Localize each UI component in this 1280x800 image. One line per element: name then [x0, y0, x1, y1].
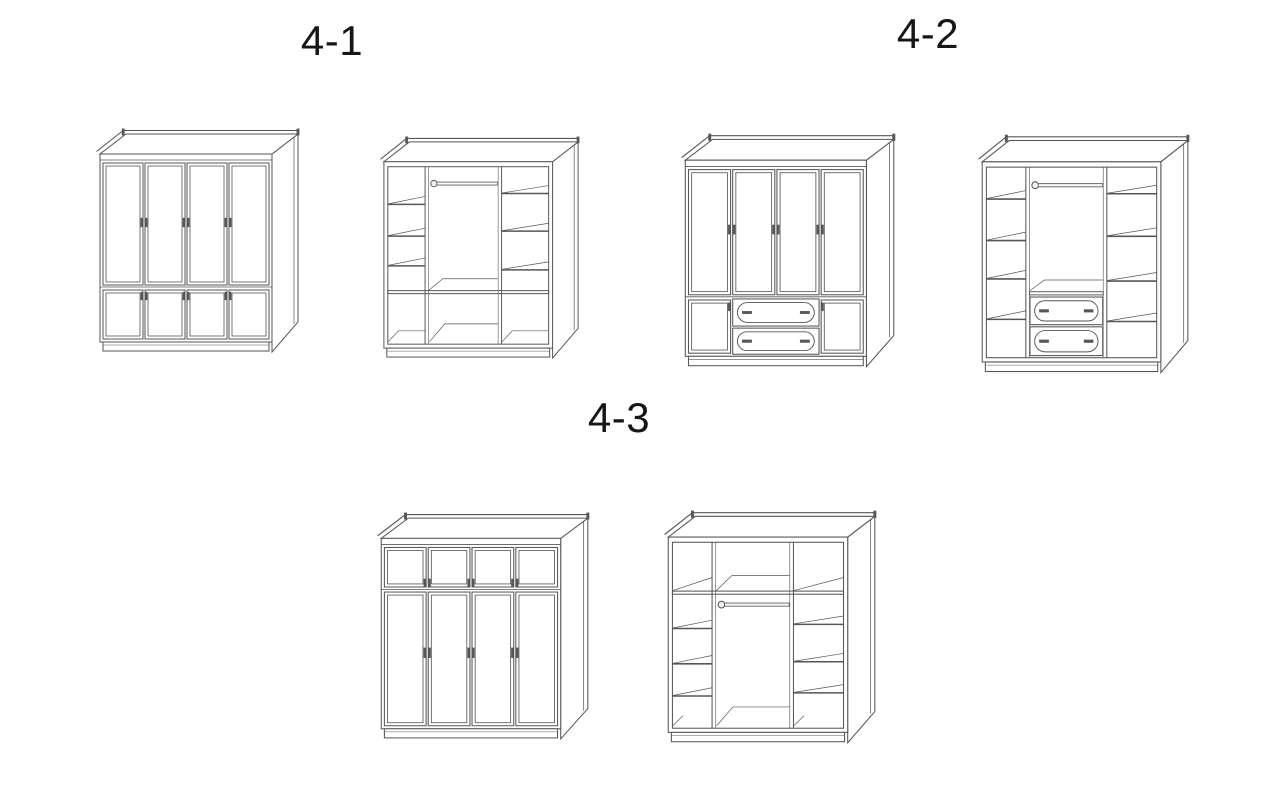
wardrobe-4-1-open-view: [378, 134, 582, 364]
wardrobe-4-3-closed-view-drawing: [375, 510, 592, 745]
wardrobe-4-1-closed-view: [94, 126, 302, 358]
variant-label-4-3: 4-3: [549, 397, 689, 439]
wardrobe-4-2-closed-view: [679, 131, 898, 373]
wardrobe-4-3-open-view: [662, 508, 879, 749]
wardrobe-4-2-open-view: [976, 132, 1192, 379]
variant-label-4-2: 4-2: [858, 13, 998, 55]
wardrobe-diagram-sheet: 4-1 4-2 4-3: [0, 0, 1280, 800]
wardrobe-4-2-open-view-drawing: [976, 132, 1192, 379]
wardrobe-4-2-closed-view-drawing: [679, 131, 898, 373]
wardrobe-4-1-open-view-drawing: [378, 134, 582, 364]
wardrobe-4-3-closed-view: [375, 510, 592, 745]
wardrobe-4-3-open-view-drawing: [662, 508, 879, 749]
wardrobe-4-1-closed-view-drawing: [94, 126, 302, 358]
variant-label-4-1: 4-1: [262, 20, 402, 62]
